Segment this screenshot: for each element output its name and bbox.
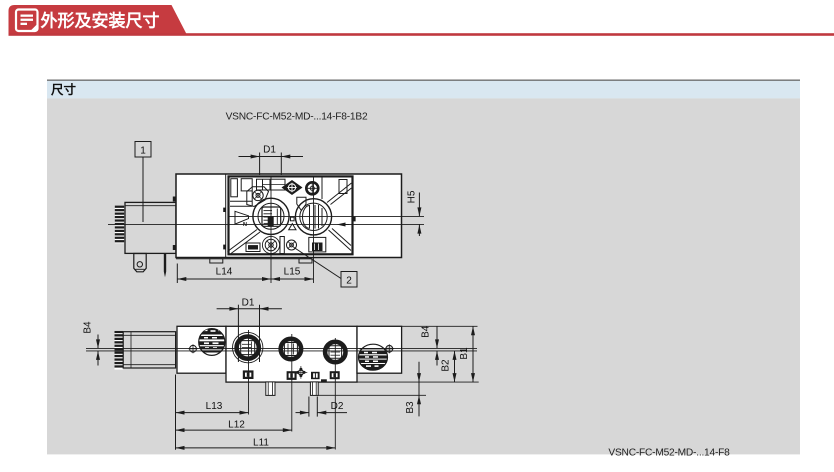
svg-text:B3: B3 <box>405 401 416 414</box>
svg-text:B1: B1 <box>459 347 470 360</box>
svg-text:D2: D2 <box>331 401 344 412</box>
svg-text:L12: L12 <box>228 419 245 430</box>
svg-text:B2: B2 <box>441 359 452 372</box>
svg-text:B4: B4 <box>83 321 94 334</box>
svg-text:B4: B4 <box>421 325 432 338</box>
svg-text:外形及安装尺寸: 外形及安装尺寸 <box>41 10 160 30</box>
svg-text:L13: L13 <box>206 401 223 412</box>
svg-text:D1: D1 <box>263 145 276 156</box>
svg-text:H5: H5 <box>407 190 418 203</box>
svg-text:VSNC-FC-M52-MD-...14-F8: VSNC-FC-M52-MD-...14-F8 <box>608 447 730 458</box>
svg-text:L15: L15 <box>284 267 301 278</box>
svg-text:VSNC-FC-M52-MD-...14-F8-1B2: VSNC-FC-M52-MD-...14-F8-1B2 <box>226 112 368 123</box>
svg-text:L14: L14 <box>216 267 233 278</box>
svg-text:L11: L11 <box>253 437 269 448</box>
svg-text:N: N <box>243 222 247 228</box>
svg-text:2: 2 <box>346 276 352 287</box>
svg-text:尺寸: 尺寸 <box>51 82 77 97</box>
svg-text:D1: D1 <box>242 298 255 309</box>
svg-text:1: 1 <box>140 146 146 157</box>
